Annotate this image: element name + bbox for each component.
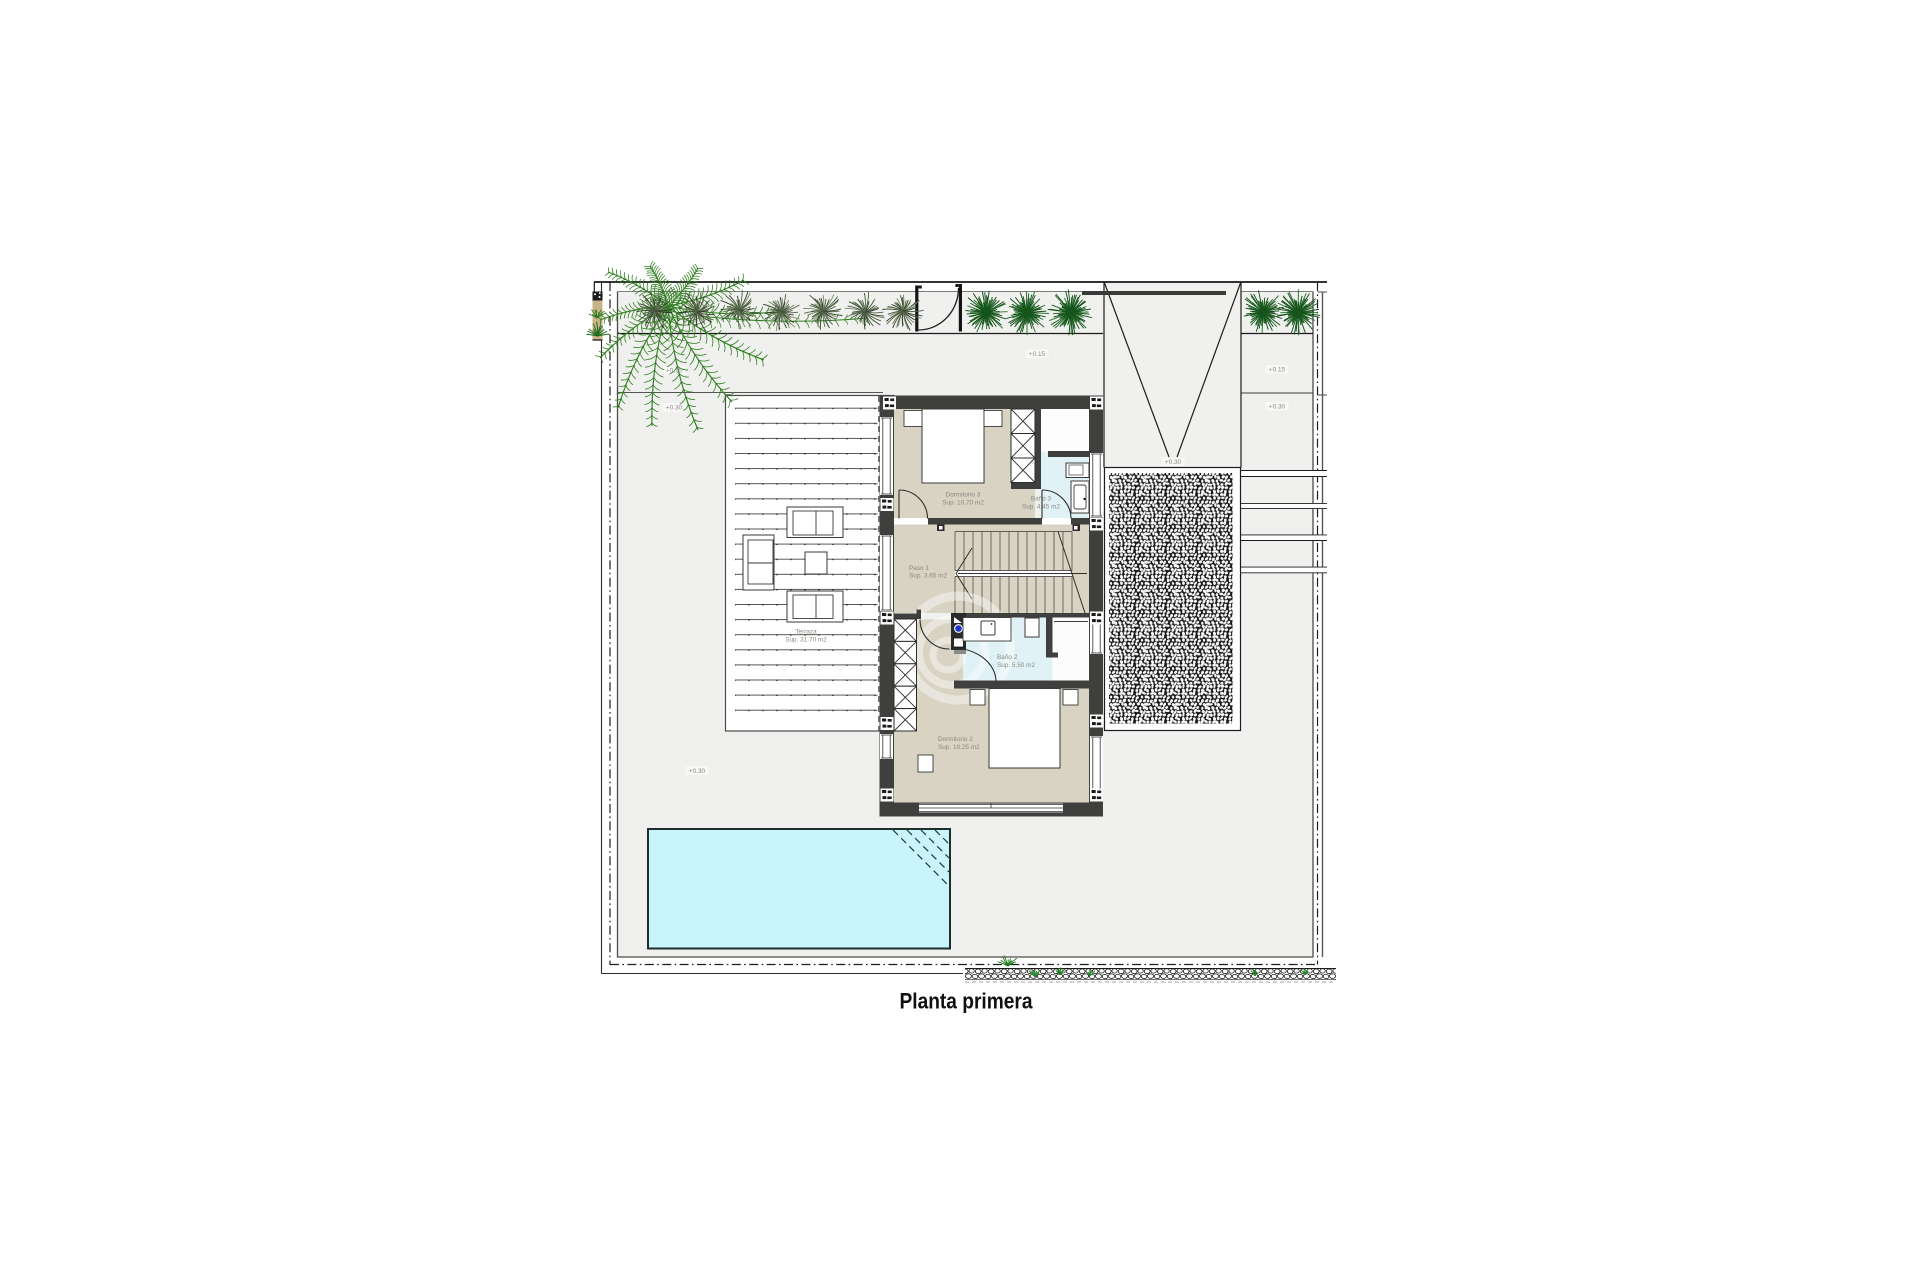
svg-text:Paso 1: Paso 1 bbox=[909, 565, 929, 572]
svg-text:Sup. 3.65 m2: Sup. 3.65 m2 bbox=[909, 573, 947, 580]
svg-text:+0.15: +0.15 bbox=[1029, 351, 1046, 358]
svg-text:Dormitorio 3: Dormitorio 3 bbox=[946, 492, 981, 499]
svg-text:Baño 3: Baño 3 bbox=[1031, 496, 1052, 503]
svg-text:+0.30: +0.30 bbox=[1165, 459, 1182, 466]
svg-text:Planta primera: Planta primera bbox=[900, 989, 1033, 1014]
svg-text:+0.30: +0.30 bbox=[666, 405, 683, 412]
svg-text:Terraza: Terraza bbox=[795, 629, 817, 636]
svg-text:+0.30: +0.30 bbox=[1269, 404, 1286, 411]
svg-text:Sup. 10.70 m2: Sup. 10.70 m2 bbox=[942, 500, 984, 507]
svg-text:Sup. 31.70 m2: Sup. 31.70 m2 bbox=[785, 637, 827, 644]
svg-text:Dormitorio 2: Dormitorio 2 bbox=[938, 736, 973, 743]
svg-text:Sup. 18.25 m2: Sup. 18.25 m2 bbox=[938, 744, 980, 751]
svg-text:+0.15: +0.15 bbox=[1269, 367, 1286, 374]
svg-text:+0.30: +0.30 bbox=[689, 768, 706, 775]
svg-text:Sup. 5.50 m2: Sup. 5.50 m2 bbox=[997, 662, 1035, 669]
svg-text:Baño 2: Baño 2 bbox=[997, 654, 1018, 661]
svg-text:Sup. 4.45 m2: Sup. 4.45 m2 bbox=[1022, 504, 1060, 511]
